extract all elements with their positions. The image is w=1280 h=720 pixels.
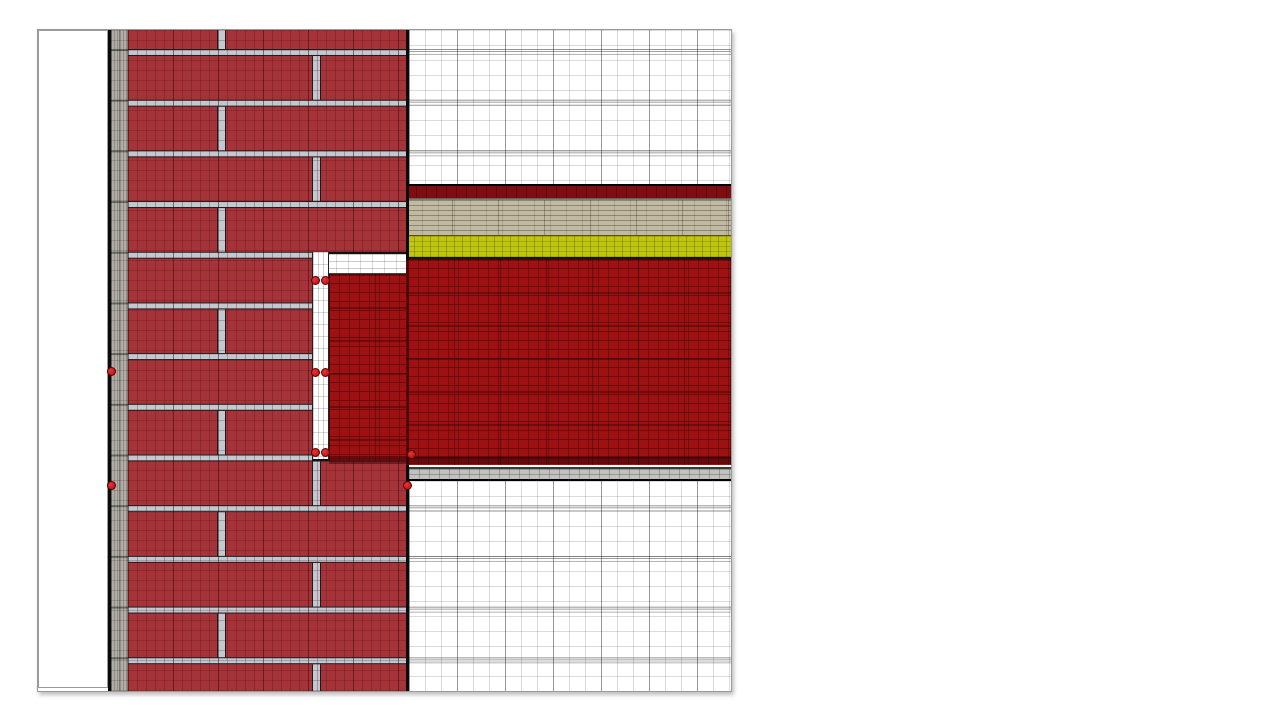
wall-inner-face-line-lower [406, 465, 409, 691]
mesh-node-marker[interactable] [407, 450, 416, 459]
insulation-layer [406, 235, 731, 259]
mesh-node-marker[interactable] [107, 367, 116, 376]
wall-inner-face-line-upper [406, 30, 409, 184]
mesh-node-marker[interactable] [403, 481, 412, 490]
concrete-slab [406, 259, 731, 465]
mesh-node-marker[interactable] [321, 276, 330, 285]
mesh-node-marker[interactable] [311, 276, 320, 285]
screed-layer [406, 199, 731, 235]
mesh-node-marker[interactable] [107, 481, 116, 490]
exterior-render-layer [111, 30, 128, 691]
ceiling-plaster-layer [409, 467, 731, 479]
floor-finish-layer [406, 186, 731, 199]
app-background: { "page": { "background": "#ffffff" }, "… [0, 0, 1280, 720]
mesh-node-marker[interactable] [321, 368, 330, 377]
interior-space-upper-mesh [409, 30, 731, 184]
slab-bottom-edge-band [329, 456, 731, 464]
mesh-node-marker[interactable] [311, 368, 320, 377]
concrete-slab-bearing-end [329, 274, 406, 461]
interior-space-lower-mesh [409, 481, 731, 691]
detail-drawing-canvas[interactable] [37, 29, 732, 692]
floor-layers-left-edge-line [406, 184, 409, 259]
mesh-node-marker[interactable] [311, 448, 320, 457]
mesh-node-marker[interactable] [321, 448, 330, 457]
exterior-air-region [38, 30, 108, 688]
